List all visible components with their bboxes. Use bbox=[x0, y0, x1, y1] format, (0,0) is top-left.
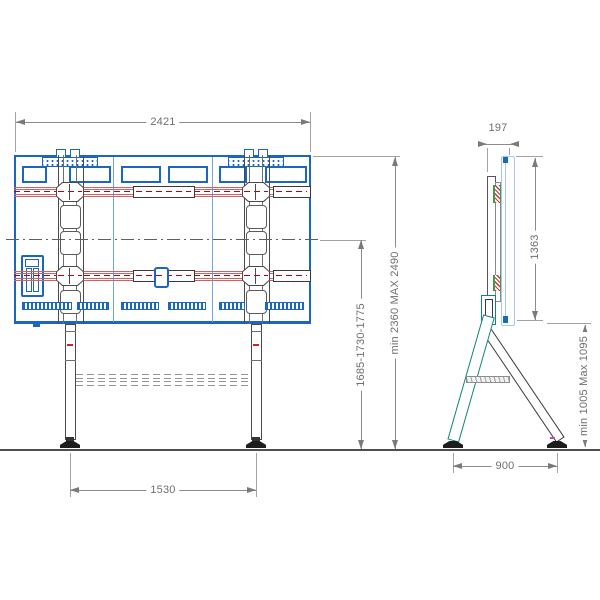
arrow-right-icon bbox=[301, 119, 310, 125]
dim-feet-span-front: 1530 bbox=[146, 484, 179, 496]
rail-hub-centerline bbox=[244, 275, 268, 276]
arrow-down-icon bbox=[532, 311, 538, 320]
horizontal-centerline bbox=[6, 239, 318, 240]
front-right-leg bbox=[251, 324, 262, 440]
arrow-up-icon bbox=[358, 240, 364, 249]
hidden-crossbar bbox=[76, 378, 251, 379]
leg-red-mark bbox=[67, 344, 73, 346]
foot-stem bbox=[66, 437, 74, 441]
extension-line bbox=[256, 453, 257, 497]
technical-drawing-tv-floor-stand: 2421 1530 1685-1730-1775 min 2360 MAX 24… bbox=[0, 0, 600, 600]
column-cutout bbox=[246, 290, 267, 314]
front-left-foot bbox=[60, 441, 80, 448]
hidden-crossbar bbox=[76, 374, 251, 375]
side-front-foot bbox=[443, 441, 463, 448]
arrow-right-icon bbox=[247, 487, 256, 493]
side-cross-brace bbox=[466, 376, 510, 383]
leg-joint bbox=[65, 360, 76, 361]
dim-height-total-range: min 2360 MAX 2490 bbox=[389, 247, 401, 358]
dim-feet-span-side: 900 bbox=[492, 460, 519, 472]
rail-hub-bolt bbox=[255, 268, 256, 284]
extension-line bbox=[517, 320, 543, 321]
extension-line bbox=[310, 112, 311, 152]
rail-hub-bolt bbox=[69, 184, 70, 200]
arrow-right-icon bbox=[478, 141, 487, 147]
rail-segment bbox=[133, 186, 195, 198]
arrow-left-icon bbox=[16, 119, 25, 125]
front-right-foot bbox=[246, 441, 266, 448]
handle bbox=[168, 166, 208, 183]
floor-line bbox=[0, 449, 600, 451]
side-foot-magenta-mark bbox=[550, 437, 555, 439]
front-left-leg bbox=[65, 324, 76, 440]
handle bbox=[121, 166, 161, 183]
extension-line bbox=[487, 148, 488, 172]
leg-joint bbox=[251, 331, 262, 332]
leg-joint bbox=[65, 331, 76, 332]
side-panel-cap-bottom bbox=[503, 316, 508, 323]
extension-line bbox=[313, 156, 400, 157]
vent-grille bbox=[219, 302, 245, 310]
dim-depth-top: 197 bbox=[485, 122, 512, 134]
arrow-right-icon bbox=[548, 463, 557, 469]
column-cutout bbox=[60, 205, 81, 229]
rail-segment-dash bbox=[276, 275, 307, 276]
column-cutout bbox=[246, 231, 267, 255]
leg-red-mark bbox=[253, 344, 259, 346]
rail-segment bbox=[273, 186, 311, 198]
rail-segment-dash bbox=[136, 191, 191, 192]
side-panel-inner-line bbox=[505, 158, 506, 322]
rail-hub-fill bbox=[243, 267, 269, 285]
vent-grille bbox=[77, 302, 109, 310]
extension-line bbox=[547, 323, 591, 324]
arrow-down-icon bbox=[392, 440, 398, 449]
rail-hub-bolt bbox=[69, 268, 70, 284]
handle bbox=[265, 166, 307, 183]
vent-grille bbox=[168, 302, 206, 310]
rail-hub-fill bbox=[57, 183, 83, 201]
extension-line bbox=[557, 453, 558, 473]
side-display-panel bbox=[501, 156, 515, 326]
arrow-up-icon bbox=[532, 158, 538, 167]
center-bracket-dash bbox=[156, 275, 165, 276]
arrow-down-icon bbox=[358, 440, 364, 449]
handle bbox=[219, 166, 247, 183]
vent-grille bbox=[121, 302, 159, 310]
rail-hub-bolt bbox=[255, 184, 256, 200]
rail-hub-centerline bbox=[244, 191, 268, 192]
dim-underside-height-range: min 1005 Max 1095 bbox=[578, 332, 590, 440]
extension-line bbox=[509, 148, 510, 155]
rail-segment bbox=[273, 270, 311, 282]
control-box-window bbox=[25, 259, 39, 267]
side-rear-leg bbox=[481, 325, 565, 443]
side-rear-foot bbox=[547, 441, 567, 448]
arrow-up-icon bbox=[392, 157, 398, 166]
dim-width-top: 2421 bbox=[146, 116, 179, 128]
rail-hub-fill bbox=[57, 267, 83, 285]
arrow-left-icon bbox=[453, 463, 462, 469]
side-panel-cap-top bbox=[503, 157, 508, 163]
dim-height-mid-range: 1685-1730-1775 bbox=[355, 299, 367, 391]
handle bbox=[22, 166, 47, 183]
rail-hub-fill bbox=[243, 183, 269, 201]
rail-segment-dash bbox=[276, 191, 307, 192]
column-cutout bbox=[60, 231, 81, 255]
rail-hub-centerline bbox=[58, 275, 82, 276]
hidden-crossbar bbox=[76, 381, 251, 382]
vent-grille bbox=[265, 302, 304, 310]
column-cutout bbox=[246, 205, 267, 229]
arrow-left-icon bbox=[70, 487, 79, 493]
center-bracket bbox=[154, 267, 169, 288]
hidden-crossbar bbox=[76, 385, 251, 386]
leg-joint bbox=[251, 360, 262, 361]
arrow-left-icon bbox=[510, 141, 519, 147]
extension-line bbox=[516, 156, 543, 157]
foot-stem bbox=[252, 437, 260, 441]
bottom-tab bbox=[33, 324, 40, 327]
vent-grille bbox=[22, 302, 72, 310]
rail-hub-centerline bbox=[58, 191, 82, 192]
dim-screen-height: 1363 bbox=[529, 230, 541, 263]
extension-line bbox=[15, 112, 16, 152]
